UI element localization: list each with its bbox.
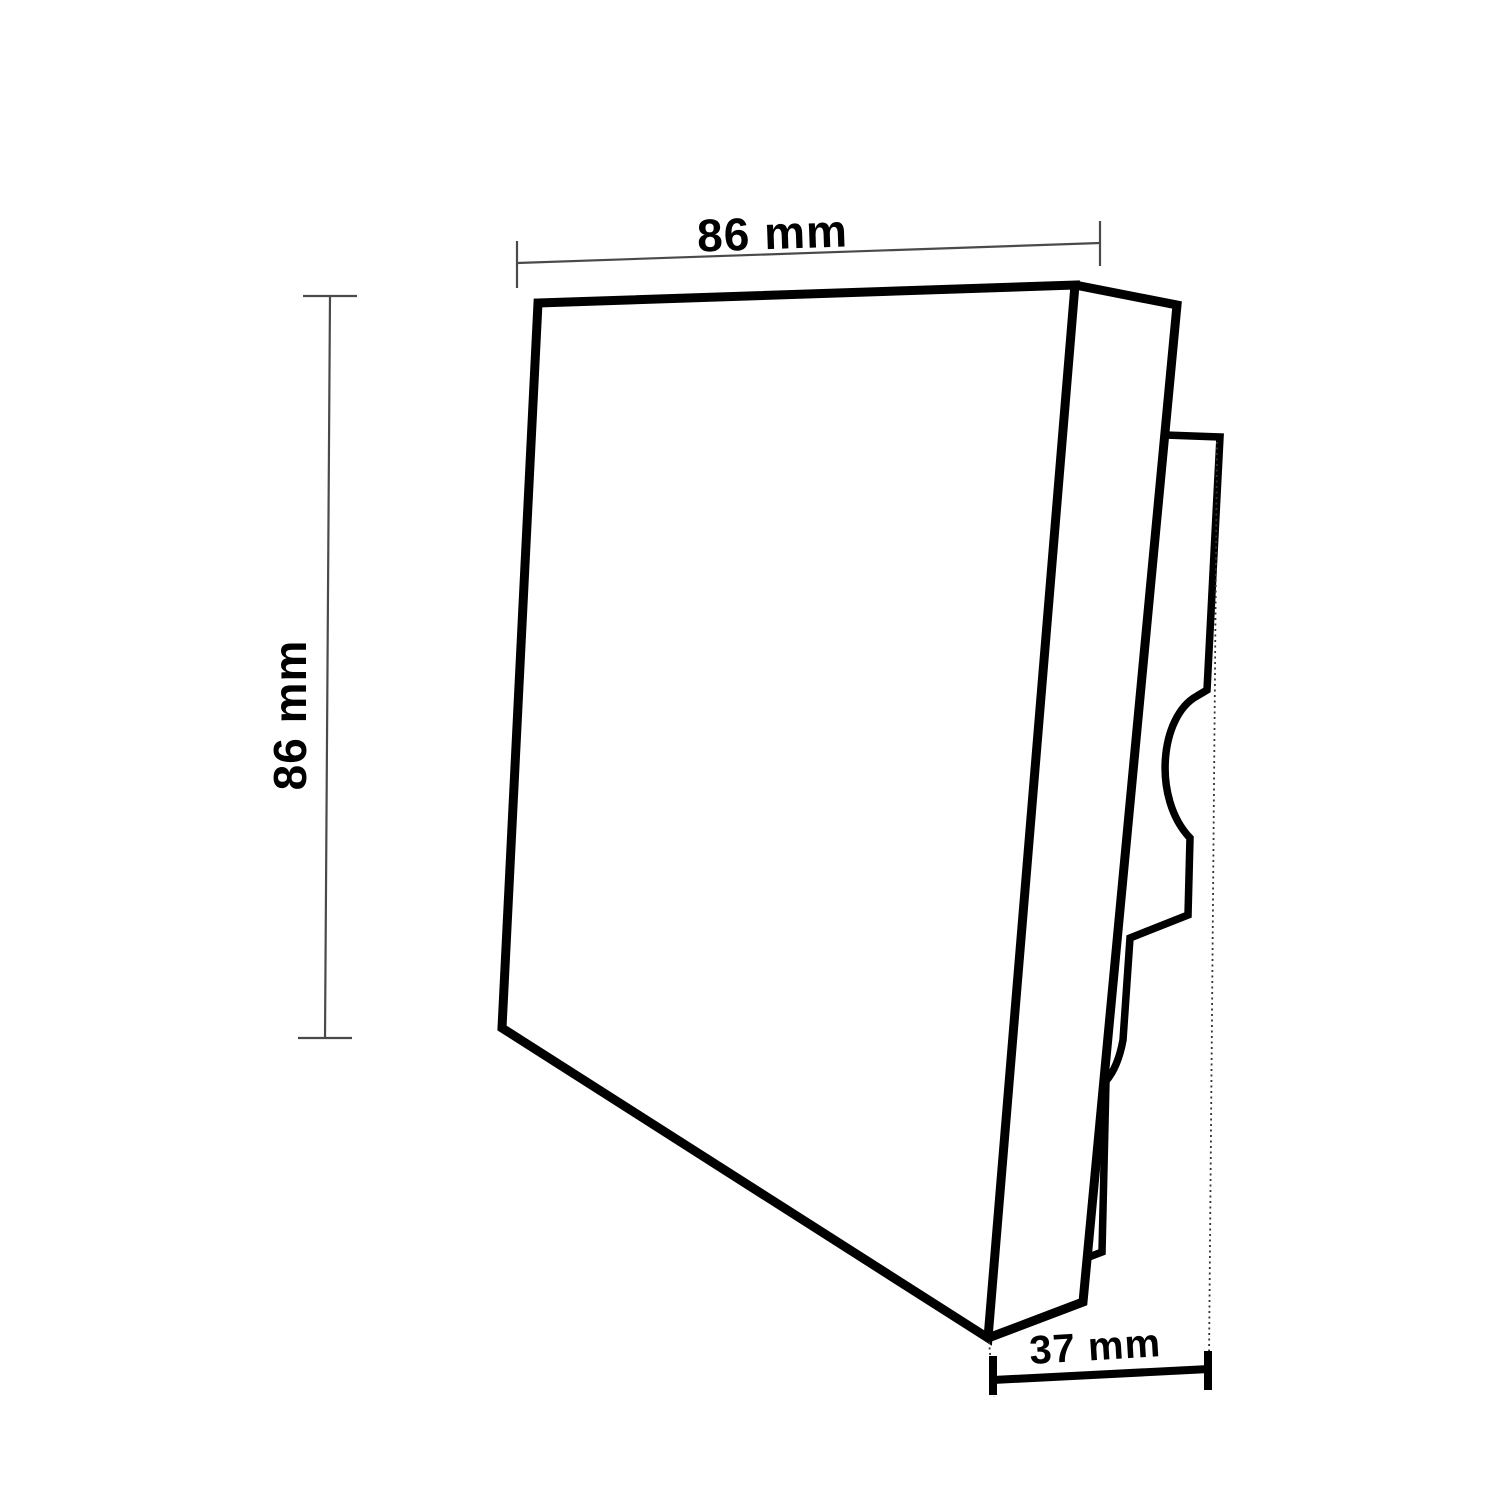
dimension-width: 86 mm — [517, 204, 1100, 288]
device-outline — [502, 285, 1220, 1338]
dimension-height: 86 mm — [264, 296, 357, 1038]
diagram-canvas: 86 mm 86 mm 37 mm — [0, 0, 1500, 1500]
front-panel-outline — [502, 285, 1075, 1338]
dimension-drawing: 86 mm 86 mm 37 mm — [0, 0, 1500, 1500]
depth-dimension-label: 37 mm — [1028, 1321, 1162, 1373]
side-face-outline — [988, 285, 1177, 1338]
width-dimension-label: 86 mm — [696, 204, 848, 261]
depth-dimension-line — [993, 1369, 1209, 1380]
height-dimension-line — [325, 296, 330, 1038]
dimension-depth: 37 mm — [993, 1321, 1209, 1395]
height-dimension-label: 86 mm — [264, 640, 316, 791]
